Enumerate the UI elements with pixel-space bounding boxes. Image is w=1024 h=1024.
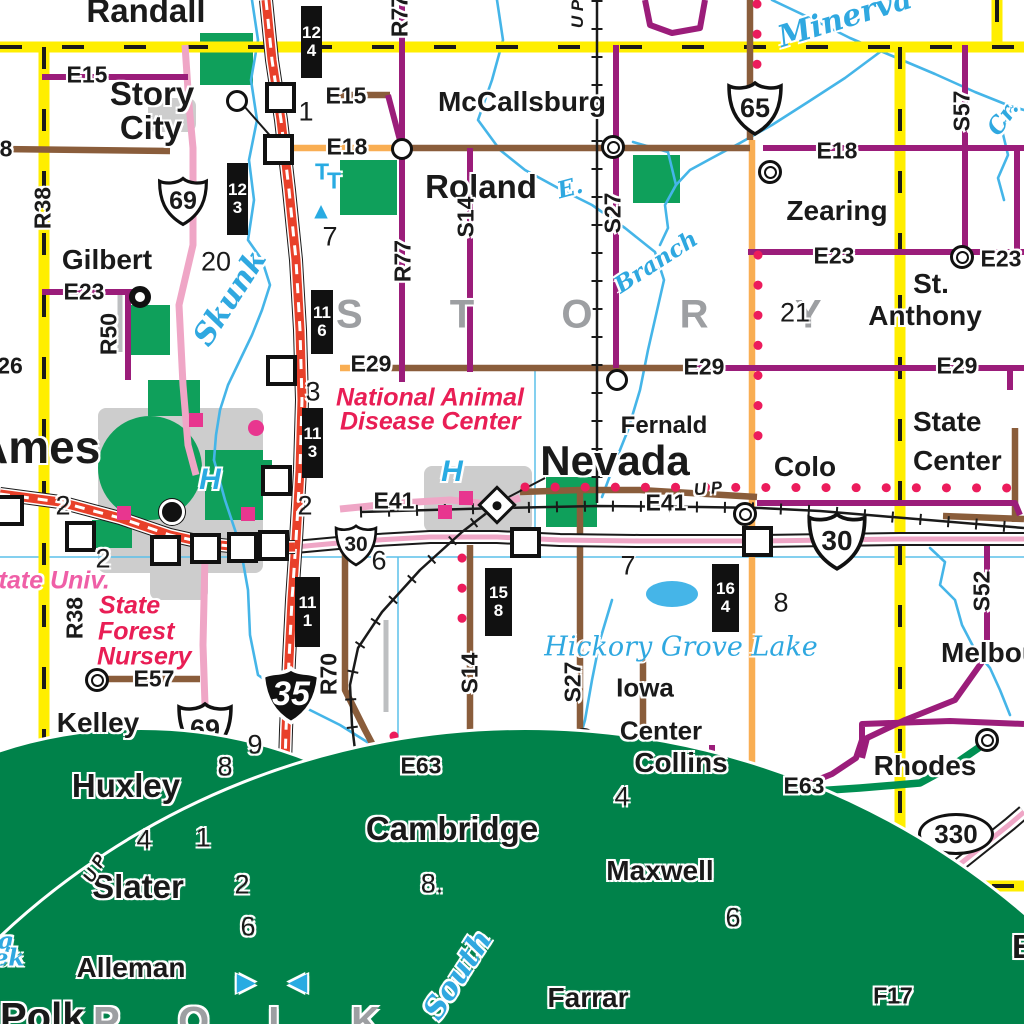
county-road-label-e63: E63: [784, 773, 825, 800]
poi-label-state-univ: State Univ.: [0, 567, 110, 596]
county-seat-dot: [491, 499, 504, 512]
county-road-label-r70: R70: [316, 653, 343, 695]
town-label-rhodes: Rhodes: [874, 750, 977, 782]
hospital-icon: H: [441, 455, 463, 489]
mile-marker-m124: 124: [301, 6, 322, 78]
us-route-shield: 65: [725, 78, 785, 138]
town-label-melbourne: Melbourne: [941, 637, 1024, 669]
town-marker-dc: [950, 245, 974, 269]
county-road-label-e41: E41: [646, 490, 687, 517]
railroad-label-up: U P: [568, 0, 588, 28]
county-road-label-e29: E29: [684, 354, 725, 381]
county-road-label-e23: E23: [981, 246, 1022, 273]
county-road-label-fragment: 26: [0, 353, 23, 380]
water-label-e-branch: Branch: [609, 225, 702, 299]
marker-inner-ring: [91, 674, 104, 687]
poi-label-forest-nursery: Nursery: [97, 643, 192, 672]
town-label-mccallsburg: McCallsburg: [438, 86, 606, 118]
county-road-label-s57: S57: [949, 91, 976, 132]
interchange-square: [227, 532, 258, 563]
water-label-minerva: Minerva: [774, 0, 916, 55]
county-road-label-r77: R77: [387, 0, 414, 37]
distance-label: 4: [136, 825, 151, 856]
town-marker-dot: [159, 499, 185, 525]
hospital-icon: H: [199, 463, 221, 497]
us-route-shield: 30: [805, 509, 869, 573]
shield-number: 30: [344, 533, 367, 557]
county-road-label-r77: R77: [390, 240, 417, 282]
map-label-overlay: 6969653030352102103301241231161131111581…: [0, 0, 1024, 1024]
marker-inner-ring: [739, 508, 752, 521]
town-label-randall: Randall: [86, 0, 205, 30]
town-label-iowa-center: Center: [620, 716, 702, 747]
town-label-kelley: Kelley: [57, 707, 140, 739]
town-marker-dc: [601, 135, 625, 159]
shield-number: 69: [169, 187, 197, 216]
county-road-label-s14: S14: [457, 653, 484, 694]
railroad-label-up: U P: [693, 478, 723, 500]
town-label-colo: Colo: [774, 451, 836, 483]
distance-label: 1: [195, 823, 210, 854]
distance-label: 20: [201, 247, 231, 278]
town-marker-dc: [85, 668, 109, 692]
us-route-shield: 69: [156, 173, 210, 229]
distance-label: 3: [305, 377, 320, 408]
interchange-square: [65, 521, 96, 552]
town-label-huxley: Huxley: [72, 767, 180, 805]
golf-icon: T: [327, 168, 341, 195]
marker-inner-ring: [981, 734, 994, 747]
mile-marker-m123: 123: [227, 163, 248, 235]
distance-label: 7: [620, 551, 635, 582]
distance-label: 2: [55, 491, 70, 522]
town-label-maxwell: Maxwell: [606, 855, 713, 887]
distance-label: 6: [240, 912, 255, 943]
interchange-square: [265, 82, 296, 113]
county-road-label-s52: S52: [969, 571, 996, 612]
mile-marker-m116: 116: [311, 290, 333, 354]
mile-marker-m113: 113: [302, 408, 323, 478]
town-marker-circle: [606, 369, 628, 391]
mile-marker-m158: 158: [485, 568, 512, 636]
town-label-slater: Slater: [92, 868, 184, 906]
rest-area-icon: ◀: [289, 969, 307, 996]
marker-inner-ring: [764, 166, 777, 179]
water-label-creek: Cr.: [982, 95, 1024, 140]
interchange-square: [0, 495, 24, 526]
town-label-zearing: Zearing: [786, 195, 887, 227]
distance-label: 4: [614, 782, 629, 813]
town-label-story-city: Story: [110, 75, 194, 113]
town-marker-dc: [758, 160, 782, 184]
county-name-polk: P O L K: [93, 1000, 404, 1024]
town-marker-diamond: [477, 485, 517, 525]
shield-number: 35: [272, 675, 310, 714]
water-label-e-branch: E.: [554, 172, 586, 205]
interchange-square: [510, 527, 541, 558]
county-road-label-e18: E18: [327, 134, 368, 161]
town-marker-dc: [733, 502, 757, 526]
county-road-label-r38: R38: [62, 597, 89, 639]
mile-marker-m164: 164: [712, 564, 739, 632]
distance-label: 6: [371, 546, 386, 577]
county-road-label-e29: E29: [937, 353, 978, 380]
county-road-label-fragment: 8: [0, 136, 12, 163]
distance-label: 2: [95, 544, 110, 575]
town-label-st-anthony: St.: [913, 268, 949, 300]
town-label-st-anthony: Anthony: [868, 300, 982, 332]
town-label-iowa-center: Iowa: [616, 673, 674, 704]
county-road-label-r38: R38: [30, 187, 57, 229]
town-label-story-city: City: [120, 109, 182, 147]
town-marker-circle: [391, 138, 413, 160]
poi-label-disease-center: Disease Center: [340, 408, 521, 437]
county-road-label-s14: S14: [453, 197, 480, 238]
county-road-label-e29: E29: [351, 351, 392, 378]
shield-number: 65: [740, 93, 770, 124]
interchange-square: [190, 533, 221, 564]
distance-label: 6: [725, 903, 740, 934]
distance-label: 7: [322, 222, 337, 253]
town-label-state-center: State: [913, 406, 981, 438]
campground-icon: ▲: [310, 198, 333, 225]
town-marker-dc: [975, 728, 999, 752]
town-marker-ring: [129, 286, 151, 308]
town-marker-circle: [226, 90, 248, 112]
town-label-collins: Collins: [634, 747, 727, 779]
town-label-farrar: Farrar: [548, 982, 629, 1014]
county-road-label-s27: S27: [560, 662, 587, 703]
distance-label: 8: [217, 752, 232, 783]
town-label-fragment: B: [1012, 928, 1024, 966]
county-road-label-e15: E15: [67, 62, 108, 89]
town-label-nevada: Nevada: [540, 437, 689, 485]
town-label-polk-city: Polk: [0, 996, 84, 1024]
distance-label: 9: [247, 730, 262, 761]
interchange-square: [263, 134, 294, 165]
county-road-label-e63: E63: [401, 753, 442, 780]
county-road-label-e41: E41: [374, 488, 415, 515]
interchange-square: [261, 465, 292, 496]
rest-area-icon: ▶: [237, 969, 255, 996]
town-label-roland: Roland: [425, 168, 537, 206]
distance-label: 21: [780, 298, 810, 329]
water-label-hickory-grove-lake: Hickory Grove Lake: [544, 632, 818, 663]
county-road-label-s27: S27: [600, 193, 627, 234]
distance-label: 2: [234, 870, 249, 901]
interchange-square: [150, 535, 181, 566]
town-label-gilbert: Gilbert: [62, 244, 152, 276]
distance-label: 8.: [421, 869, 444, 900]
marker-inner-ring: [607, 141, 620, 154]
poi-label-forest-nursery: State: [99, 592, 160, 621]
shield-number: 30: [821, 525, 852, 557]
marker-inner-ring: [956, 251, 969, 264]
distance-label: 8: [773, 588, 788, 619]
town-label-state-center: Center: [913, 445, 1002, 477]
county-road-label-e23: E23: [64, 279, 105, 306]
county-road-label-r50: R50: [96, 313, 123, 355]
county-road-label-e23: E23: [814, 243, 855, 270]
interchange-square: [266, 355, 297, 386]
town-label-ames: Ames: [0, 420, 100, 474]
map-canvas[interactable]: 6969653030352102103301241231161131111581…: [0, 0, 1024, 1024]
town-label-alleman: Alleman: [77, 952, 186, 984]
county-road-label-e15: E15: [326, 83, 367, 110]
water-label-fragment: ek: [0, 945, 24, 972]
distance-label: 1: [298, 97, 313, 128]
county-road-label-e18: E18: [817, 138, 858, 165]
mile-marker-m111: 111: [295, 577, 320, 647]
distance-label: 2: [297, 491, 312, 522]
town-label-cambridge: Cambridge: [366, 810, 538, 848]
interchange-square: [742, 526, 773, 557]
interchange-square: [258, 530, 289, 561]
town-label-fernald: Fernald: [621, 412, 708, 440]
county-road-label-f17: F17: [873, 983, 913, 1010]
